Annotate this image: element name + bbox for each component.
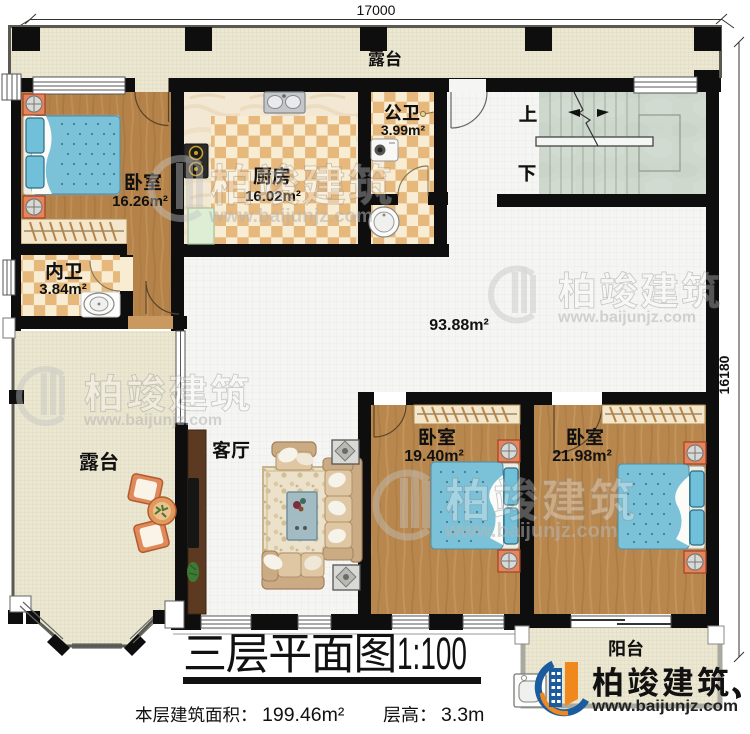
svg-text:93.88m²: 93.88m² [429,317,489,334]
svg-text:www.baijunjz.com: www.baijunjz.com [208,206,373,227]
svg-text:www.baijunjz.com: www.baijunjz.com [557,309,696,326]
svg-text:www.baijunjz.com: www.baijunjz.com [444,520,618,542]
svg-text:3.3m: 3.3m [441,704,484,726]
svg-text:21.98m²: 21.98m² [552,448,612,465]
svg-text:www.baijunjz.com: www.baijunjz.com [83,412,222,429]
svg-text:3.99m²: 3.99m² [381,122,426,138]
svg-text:1:100: 1:100 [397,628,467,679]
svg-text:3.84m²: 3.84m² [39,281,87,298]
svg-text:17000: 17000 [357,2,396,18]
svg-text:www.baijunjz.com: www.baijunjz.com [591,698,738,715]
svg-text:199.46m²: 199.46m² [262,704,345,726]
